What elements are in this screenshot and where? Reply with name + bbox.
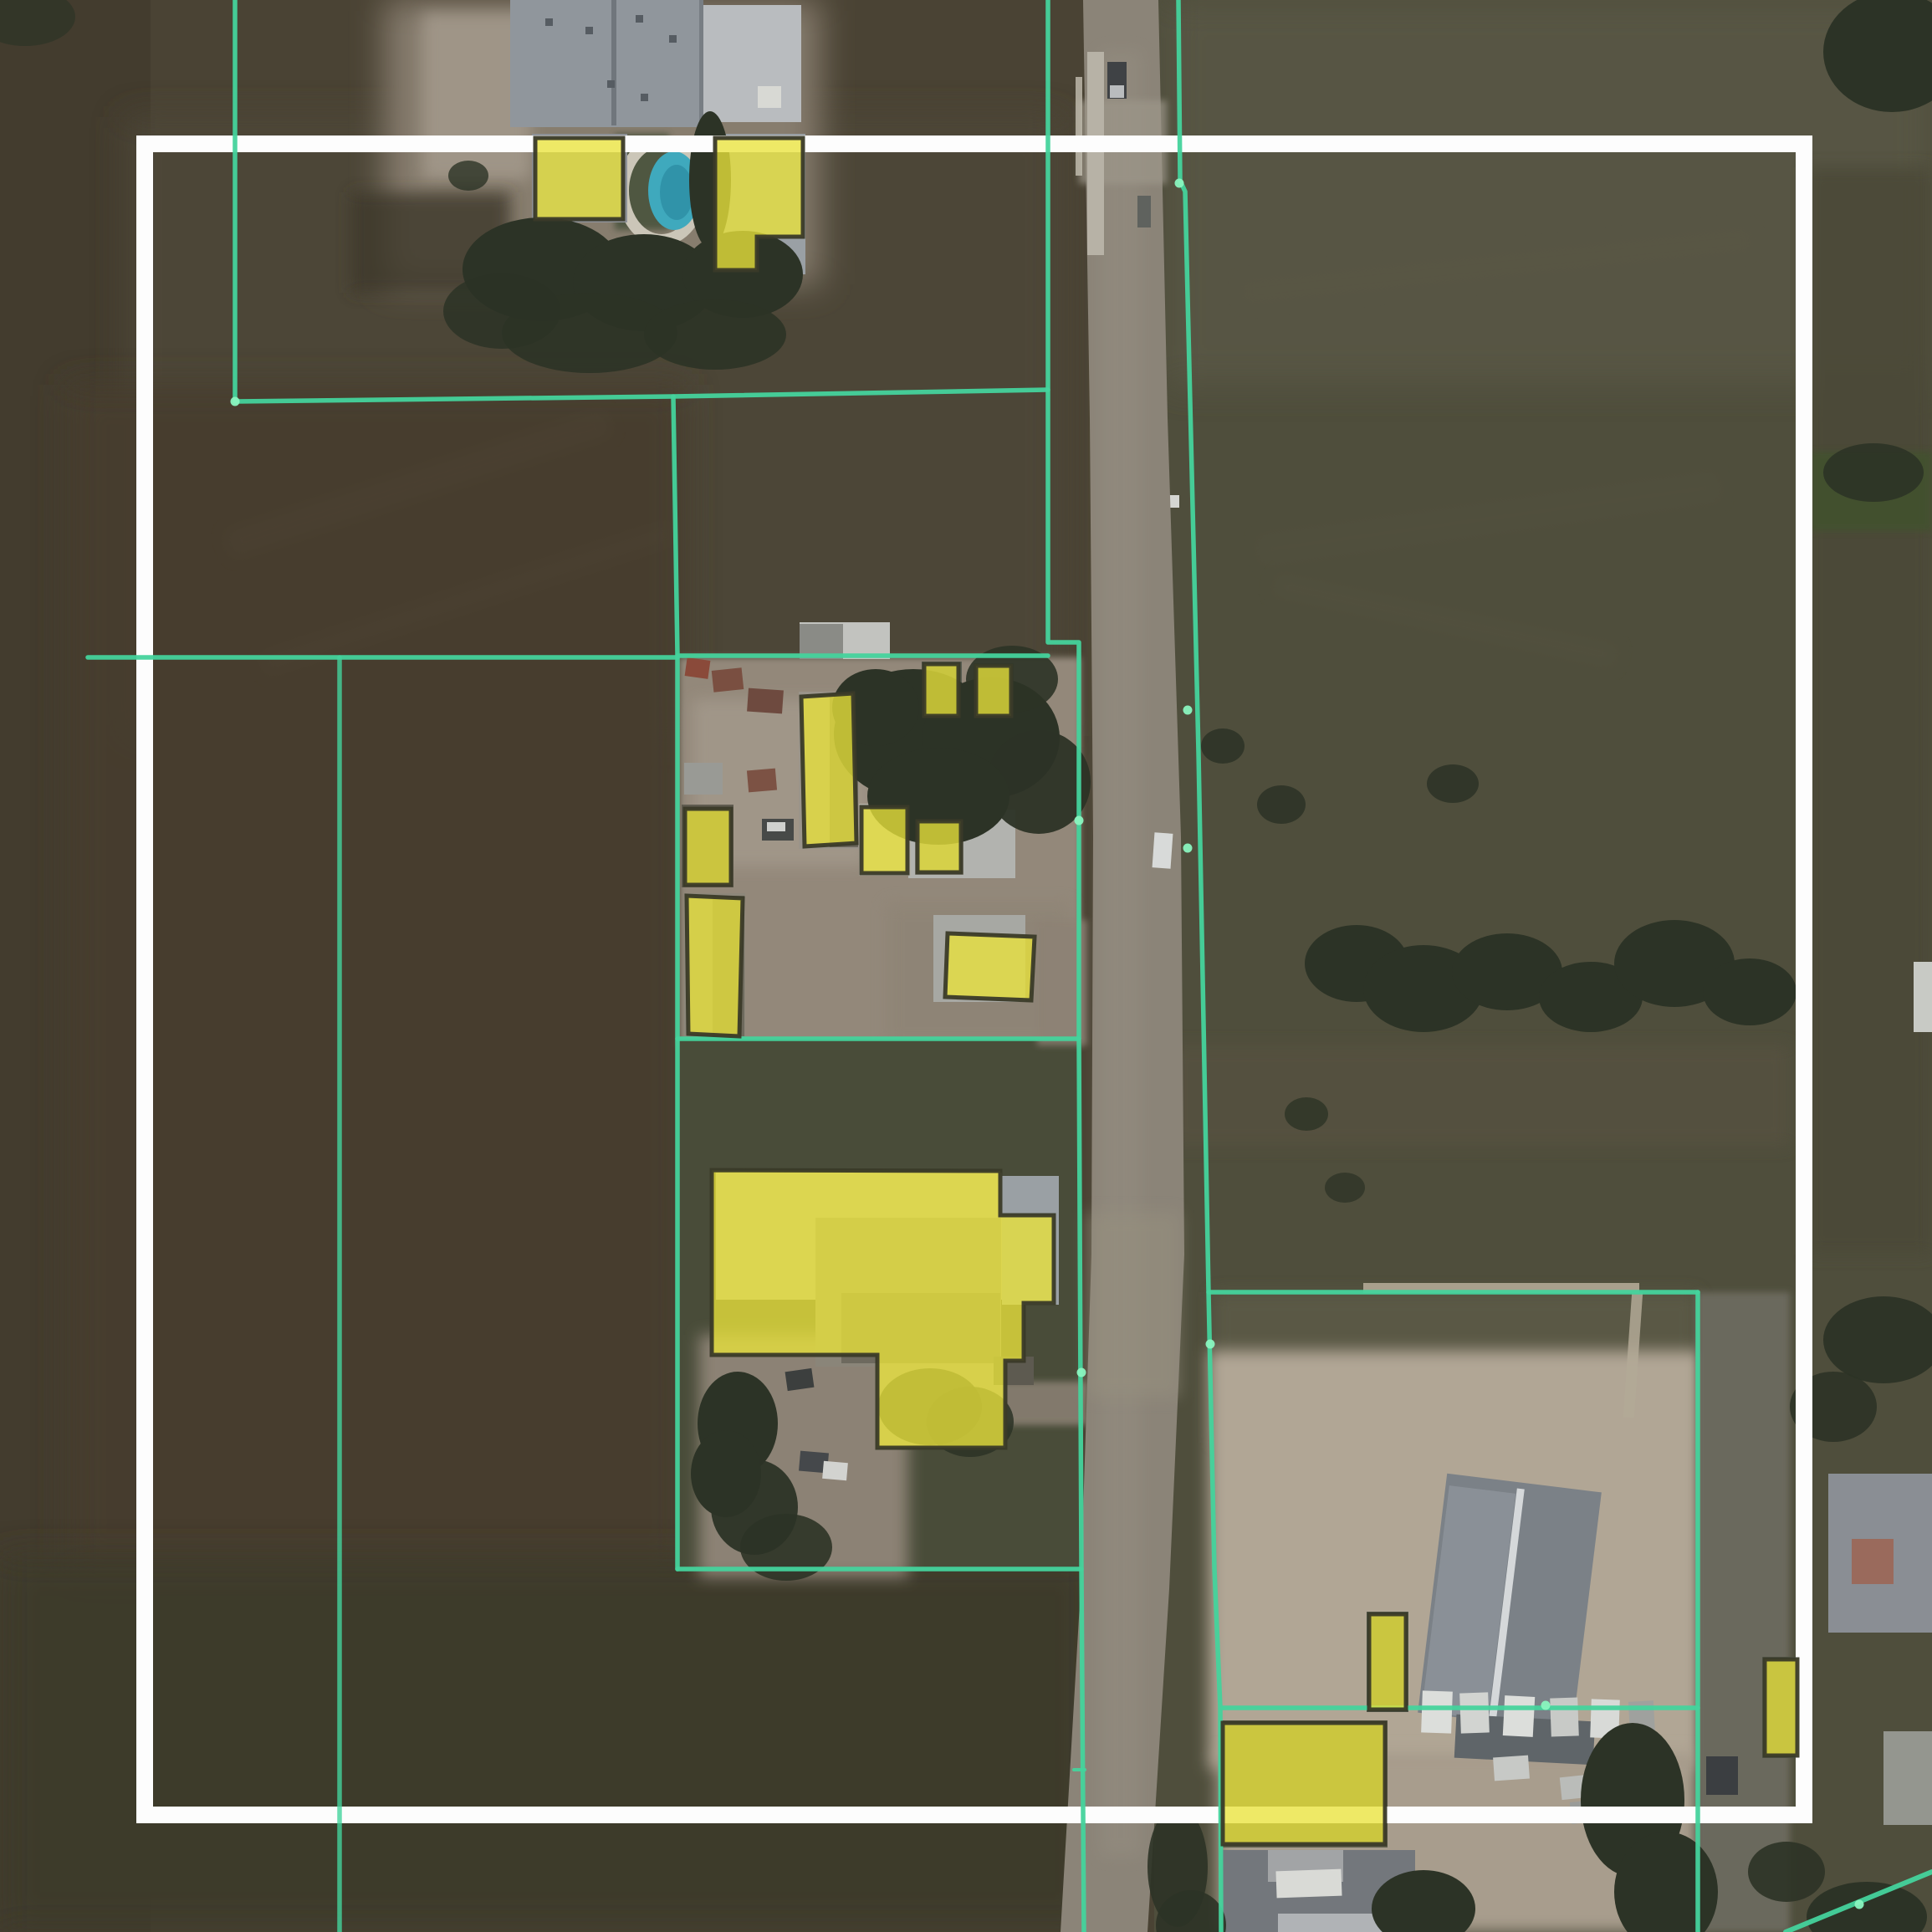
terrain-patch bbox=[0, 1556, 1096, 1932]
building-footprint-highlight[interactable] bbox=[917, 821, 961, 872]
building-footprint-highlight[interactable] bbox=[1223, 1723, 1385, 1844]
building-roof bbox=[701, 5, 801, 122]
building-roof bbox=[1852, 1539, 1894, 1584]
parcel-vertex-node bbox=[231, 397, 240, 406]
building-roof bbox=[699, 0, 703, 122]
parcel-vertex-node bbox=[1183, 706, 1193, 715]
terrain-patch bbox=[1807, 167, 1932, 1255]
tree-canopy bbox=[1823, 443, 1924, 502]
building-roof bbox=[636, 15, 643, 23]
building-footprint-highlight[interactable] bbox=[535, 138, 623, 219]
tree-canopy bbox=[1325, 1173, 1365, 1203]
vehicle bbox=[1421, 1690, 1453, 1733]
building-roof bbox=[545, 18, 553, 26]
building-footprint-highlight[interactable] bbox=[976, 666, 1011, 716]
vehicle bbox=[712, 667, 744, 693]
vehicle bbox=[767, 822, 785, 831]
terrain-patch bbox=[1169, 495, 1179, 508]
building-footprint-highlight[interactable] bbox=[685, 809, 731, 885]
vehicle bbox=[747, 688, 784, 714]
map-canvas[interactable] bbox=[0, 0, 1932, 1932]
tree-canopy bbox=[1703, 958, 1797, 1025]
building-footprint-highlight[interactable] bbox=[1369, 1614, 1406, 1710]
tree-canopy bbox=[1201, 728, 1245, 764]
vehicle bbox=[1550, 1697, 1579, 1736]
terrain-patch bbox=[1696, 1292, 1790, 1932]
building-roof bbox=[510, 0, 701, 127]
building-roof bbox=[660, 165, 693, 220]
building-roof bbox=[607, 80, 615, 88]
vehicle bbox=[1275, 1869, 1342, 1899]
building-roof bbox=[684, 763, 723, 795]
building-footprint-highlight[interactable] bbox=[687, 896, 743, 1036]
tree-canopy bbox=[448, 161, 488, 191]
vehicle bbox=[1493, 1756, 1530, 1781]
parcel-vertex-node bbox=[1855, 1900, 1864, 1909]
tree-canopy bbox=[1748, 1842, 1825, 1902]
building-roof bbox=[669, 35, 677, 43]
tree-canopy bbox=[1285, 1097, 1328, 1131]
vehicle bbox=[1459, 1692, 1490, 1733]
tree-canopy bbox=[691, 1430, 761, 1517]
parcel-vertex-node bbox=[1175, 179, 1184, 188]
building-roof bbox=[641, 94, 648, 101]
vehicle bbox=[1110, 85, 1124, 98]
building-roof bbox=[585, 27, 593, 34]
building-roof bbox=[611, 0, 616, 125]
building-footprint-highlight[interactable] bbox=[801, 693, 856, 846]
vehicle bbox=[1153, 832, 1173, 868]
road-marking bbox=[1087, 1213, 1179, 1397]
terrain-patch bbox=[1171, 1045, 1790, 1146]
building-roof bbox=[1883, 1731, 1932, 1825]
parcel-vertex-node bbox=[1075, 816, 1084, 825]
building-roof bbox=[1914, 962, 1932, 1032]
vehicle bbox=[822, 1461, 848, 1480]
road-marking bbox=[1100, 50, 1142, 1857]
vehicle bbox=[1137, 196, 1151, 227]
building-roof bbox=[758, 86, 781, 108]
parcel-vertex-node bbox=[1183, 844, 1193, 853]
parcel-vertex-node bbox=[1077, 1368, 1086, 1377]
map-viewport[interactable] bbox=[0, 0, 1932, 1932]
vehicle bbox=[785, 1368, 815, 1391]
building-footprint-highlight[interactable] bbox=[924, 664, 958, 716]
vehicle bbox=[685, 657, 711, 679]
building-footprint-highlight[interactable] bbox=[945, 933, 1035, 1000]
road-marking bbox=[1076, 77, 1082, 176]
parcel-vertex-node bbox=[1541, 1701, 1551, 1710]
tree-canopy bbox=[1427, 764, 1479, 803]
vehicle bbox=[747, 769, 777, 793]
vehicle bbox=[1706, 1756, 1738, 1795]
tree-canopy bbox=[644, 299, 786, 370]
road-marking bbox=[1087, 52, 1104, 255]
parcel-vertex-node bbox=[1206, 1340, 1215, 1349]
building-footprint-highlight[interactable] bbox=[861, 807, 907, 873]
tree-canopy bbox=[443, 273, 560, 349]
tree-canopy bbox=[1257, 785, 1306, 824]
building-footprint-highlight[interactable] bbox=[1765, 1659, 1797, 1756]
vehicle bbox=[1503, 1695, 1535, 1737]
